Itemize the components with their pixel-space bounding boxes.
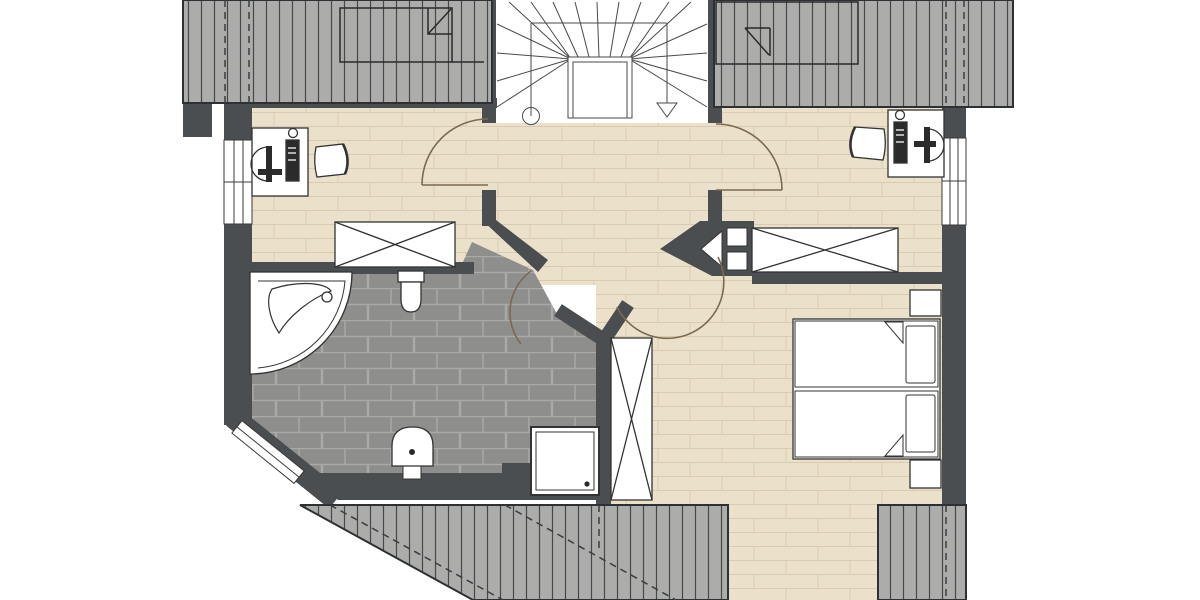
desk-right-room xyxy=(888,110,944,177)
pillow-bottom xyxy=(906,395,935,452)
window-right-wall xyxy=(942,138,966,225)
desk-lamp xyxy=(289,129,298,138)
wardrobe-left-room xyxy=(335,222,455,267)
office-chair-left-room xyxy=(315,144,348,177)
washbasin-drain xyxy=(409,449,415,455)
desk-left-room xyxy=(251,128,308,196)
washbasin-bowl xyxy=(392,427,433,466)
shower-tray-inner xyxy=(536,432,594,490)
floor-plan-page xyxy=(0,0,1200,600)
stair-newel-box xyxy=(568,57,632,118)
chair-seat xyxy=(315,144,348,177)
shower xyxy=(531,427,599,495)
wardrobe-right-room xyxy=(752,228,898,272)
chimney-flue-top xyxy=(727,228,747,246)
toilet-bowl xyxy=(401,282,421,312)
chimney-flue-bottom xyxy=(727,252,747,270)
office-chair-right-room xyxy=(850,127,885,160)
winder-staircase xyxy=(495,0,708,125)
tall-wardrobe-bedroom xyxy=(611,338,652,500)
window-left-wall xyxy=(224,140,252,224)
toilet-tank xyxy=(398,271,424,282)
wall-gable-corner xyxy=(183,101,212,137)
chair-seat xyxy=(850,127,885,160)
nightstand-bottom xyxy=(910,460,941,488)
desk-lamp xyxy=(896,111,905,120)
floor-plan-canvas xyxy=(0,0,1200,600)
toilet xyxy=(398,271,424,312)
roof-hatching-top-right xyxy=(714,0,1013,107)
monitor-foot xyxy=(914,141,936,147)
nightstand-top xyxy=(910,290,941,316)
wall-bedroom-top xyxy=(752,272,945,284)
wall-stairwell-right-stub xyxy=(708,190,722,226)
roof-hatching-bottom-right xyxy=(878,505,966,600)
monitor-foot xyxy=(258,169,282,175)
shower-drain xyxy=(584,481,589,486)
bathtub-drain xyxy=(322,292,332,302)
monitor-screen xyxy=(266,146,272,182)
double-bed xyxy=(793,319,940,459)
pillow-top xyxy=(906,326,935,383)
